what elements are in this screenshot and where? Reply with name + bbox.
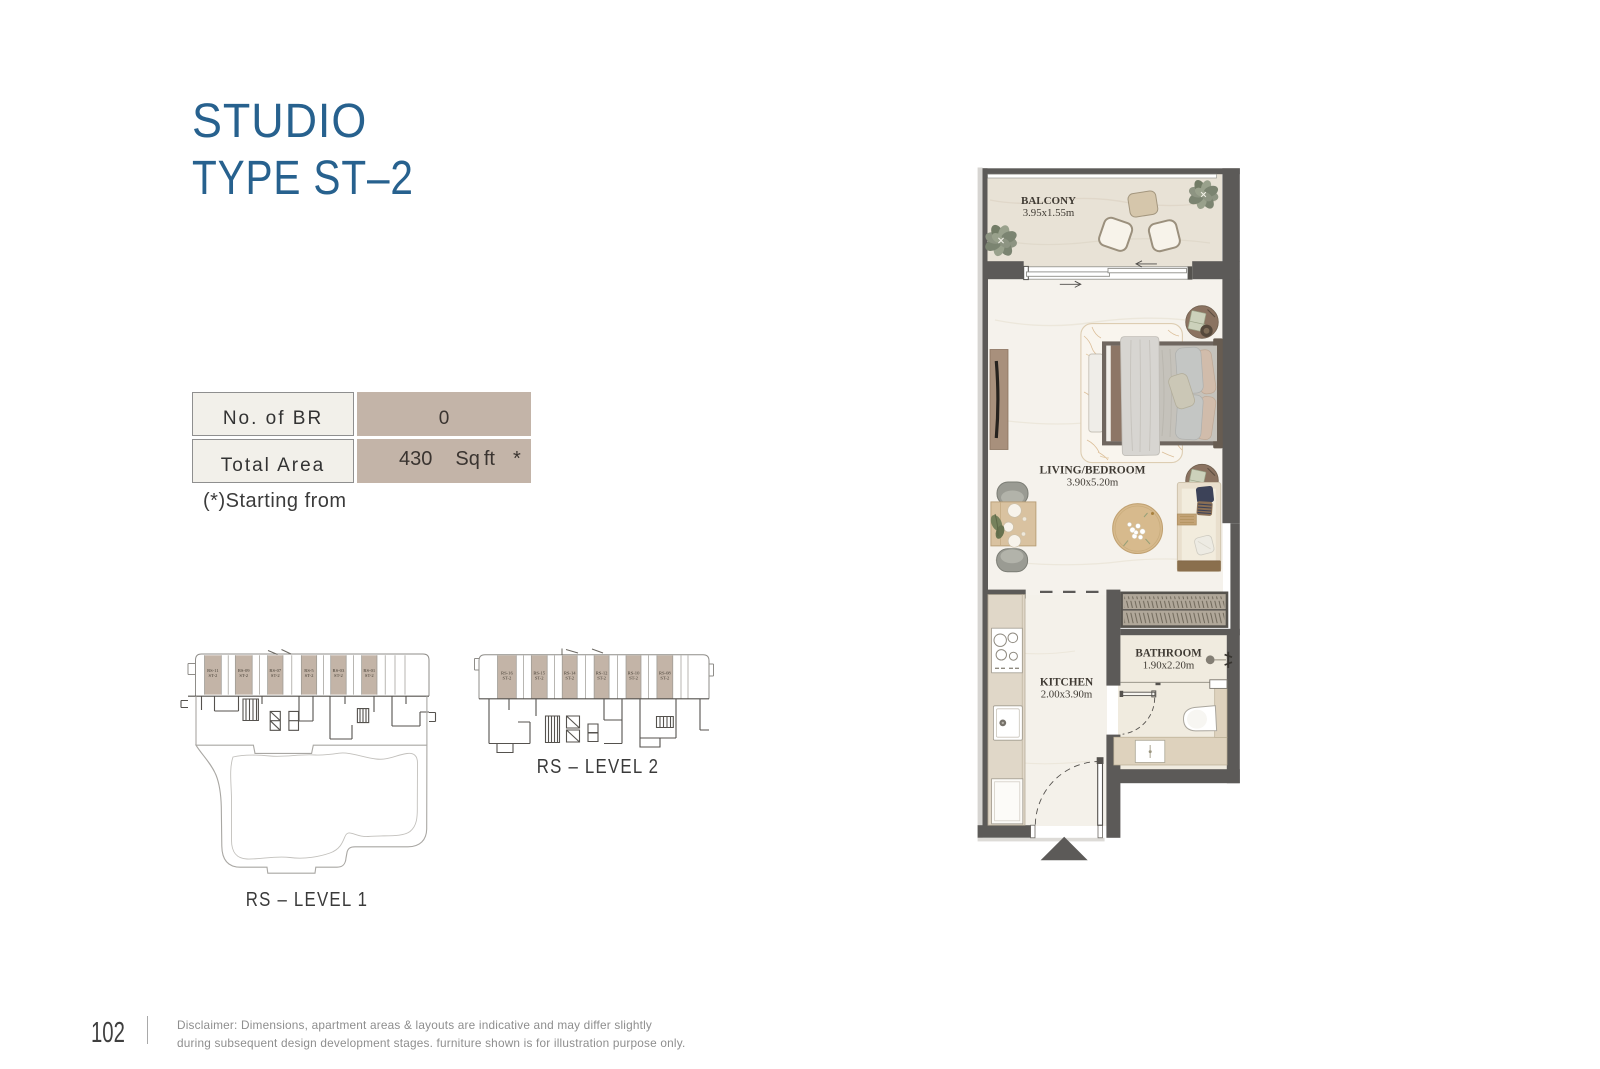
svg-text:ST-2: ST-2 (334, 673, 343, 678)
svg-text:3.90x5.20m: 3.90x5.20m (1067, 476, 1119, 488)
svg-text:1.90x2.20m: 1.90x2.20m (1143, 659, 1195, 671)
svg-text:ST-2: ST-2 (503, 676, 512, 681)
svg-text:ST-2: ST-2 (365, 673, 374, 678)
svg-text:ST-2: ST-2 (629, 676, 638, 681)
svg-text:ST-2: ST-2 (271, 673, 280, 678)
svg-text:BALCONY: BALCONY (1021, 195, 1076, 207)
svg-text:ST-2: ST-2 (597, 676, 606, 681)
svg-text:ST-2: ST-2 (660, 676, 669, 681)
svg-text:ST-2: ST-2 (565, 676, 574, 681)
svg-text:ST-2: ST-2 (535, 676, 544, 681)
svg-text:KITCHEN: KITCHEN (1040, 676, 1094, 688)
svg-text:2.00x3.90m: 2.00x3.90m (1041, 689, 1093, 701)
svg-text:ST-2: ST-2 (305, 673, 314, 678)
svg-text:ST-2: ST-2 (239, 673, 248, 678)
svg-text:LIVING/BEDROOM: LIVING/BEDROOM (1039, 464, 1145, 476)
svg-text:3.95x1.55m: 3.95x1.55m (1023, 207, 1075, 219)
svg-text:ST-2: ST-2 (209, 673, 218, 678)
svg-text:BATHROOM: BATHROOM (1135, 648, 1202, 660)
